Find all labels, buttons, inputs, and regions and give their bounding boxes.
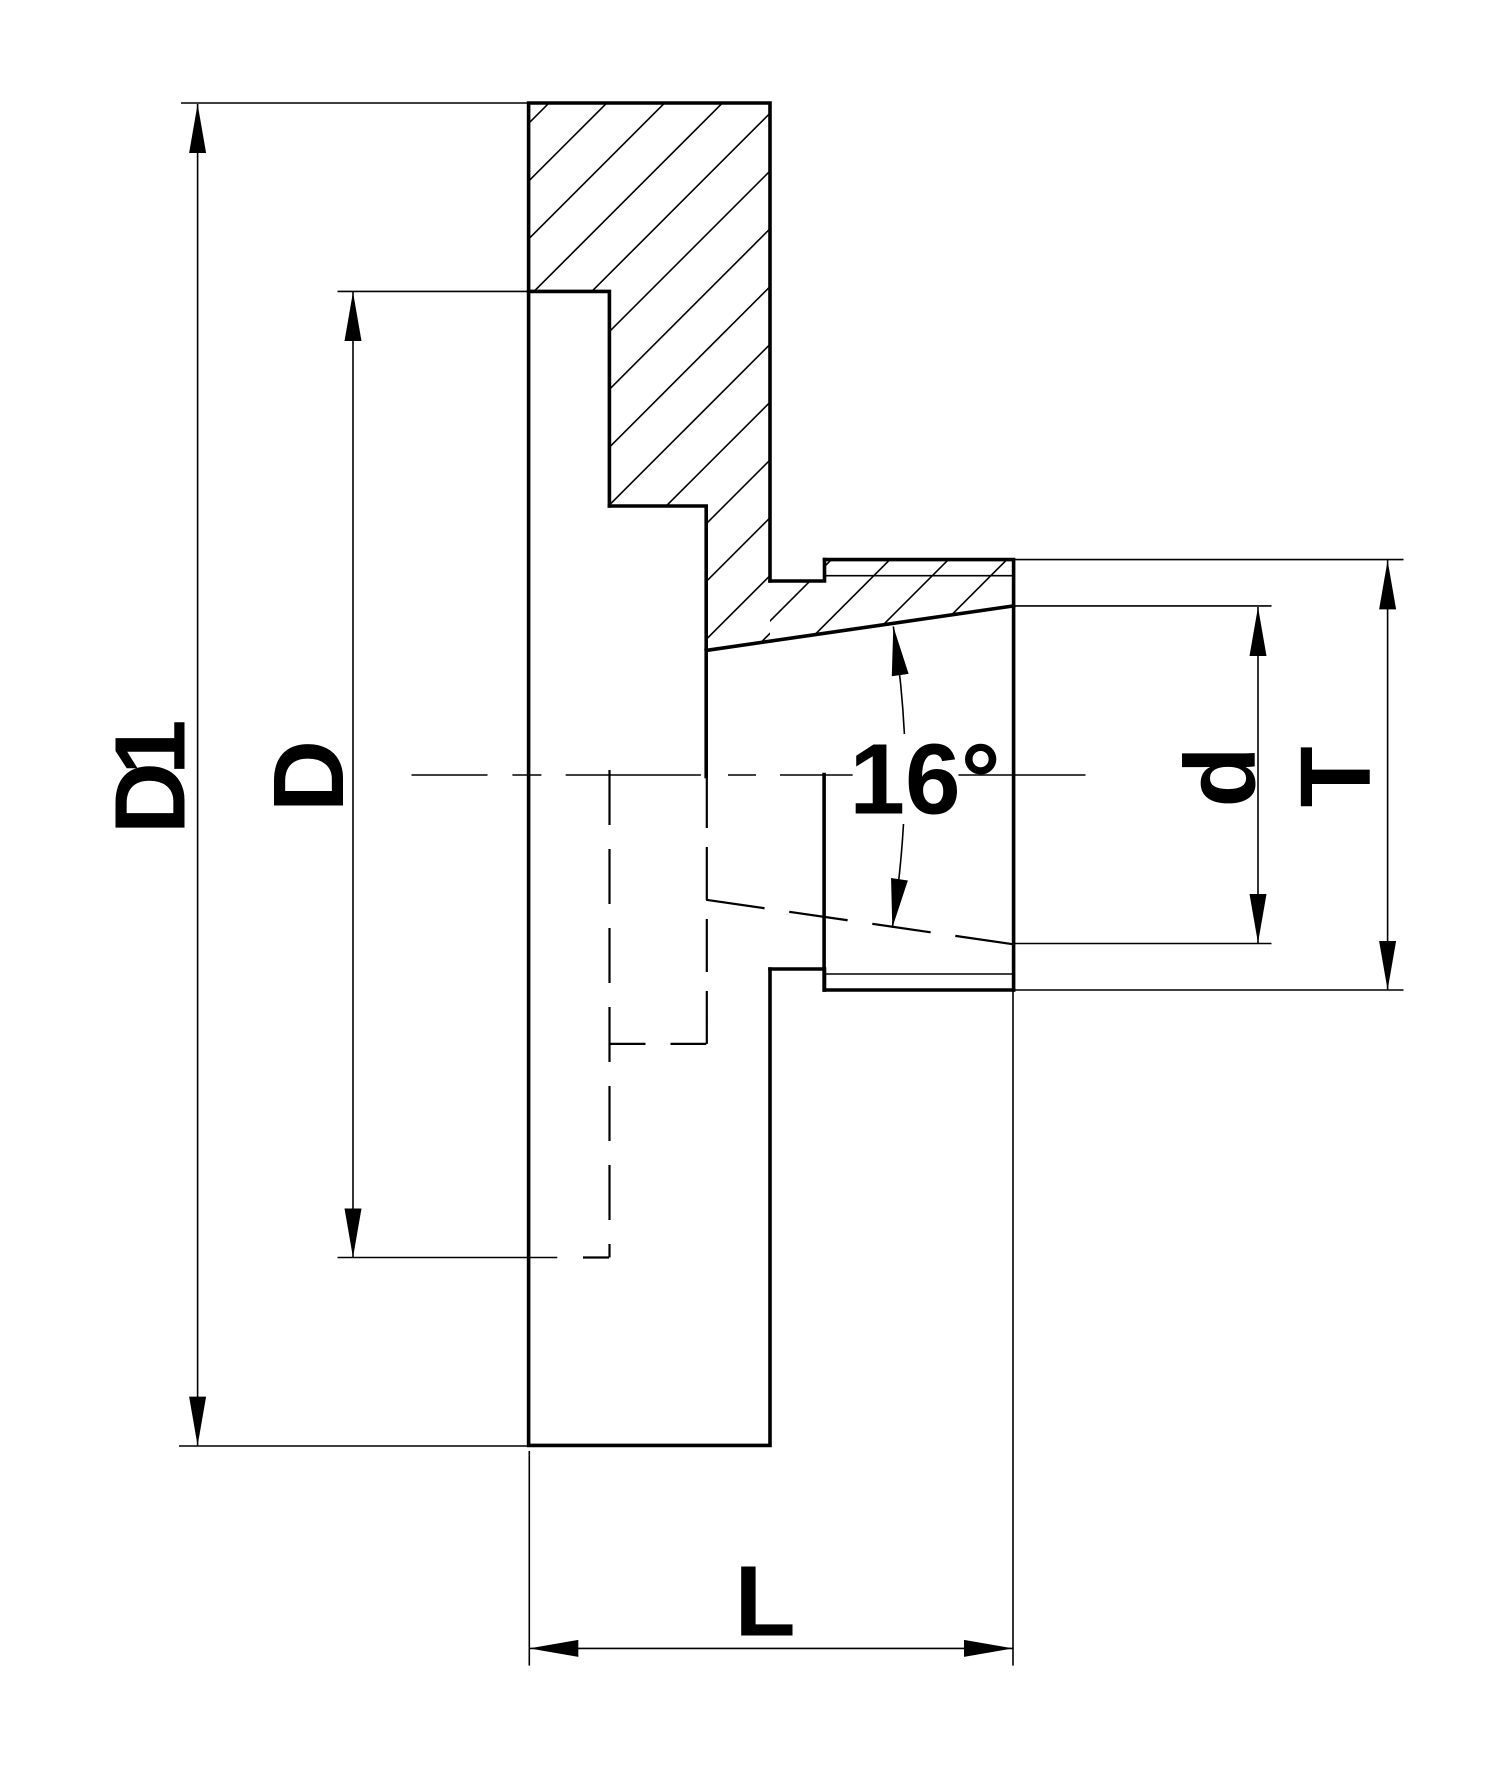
svg-text:D1: D1	[95, 722, 207, 834]
svg-text:T: T	[1280, 746, 1392, 807]
svg-text:L: L	[734, 1545, 795, 1657]
svg-text:D: D	[253, 740, 365, 812]
svg-text:16°: 16°	[849, 724, 1000, 836]
svg-text:d: d	[1165, 746, 1277, 807]
